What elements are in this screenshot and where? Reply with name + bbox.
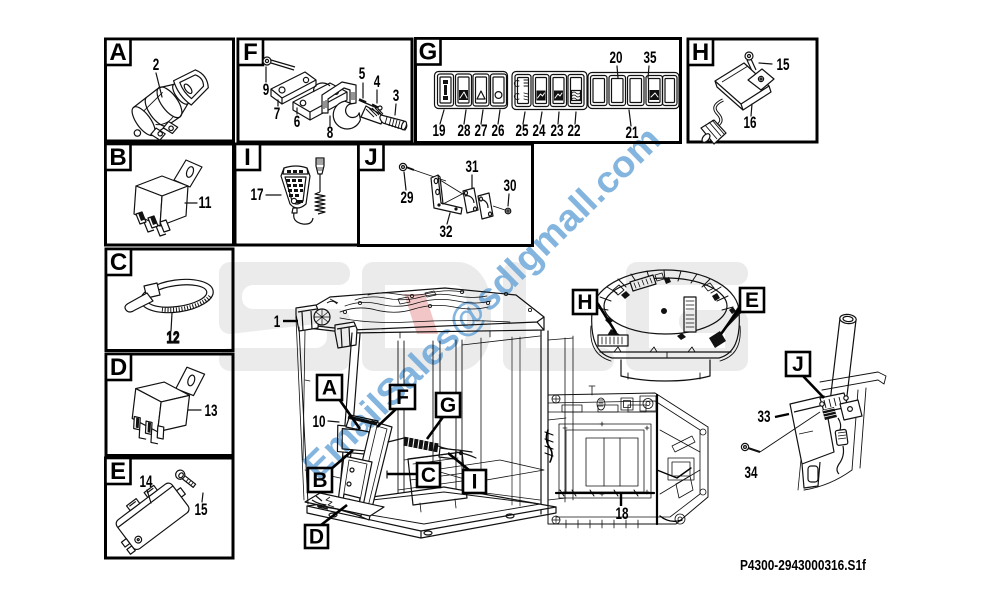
svg-text:P4300-2943000316.S1f: P4300-2943000316.S1f (740, 557, 867, 574)
svg-text:20: 20 (610, 48, 623, 67)
svg-text:11: 11 (199, 193, 212, 212)
svg-text:2: 2 (153, 55, 160, 74)
svg-text:A: A (109, 39, 126, 66)
svg-text:12: 12 (167, 328, 180, 347)
svg-text:29: 29 (401, 188, 414, 207)
svg-text:3: 3 (393, 86, 400, 105)
svg-text:G: G (440, 394, 456, 417)
svg-text:F: F (243, 39, 258, 66)
svg-text:18: 18 (616, 504, 629, 523)
svg-text:14: 14 (140, 472, 153, 491)
svg-text:4: 4 (374, 72, 381, 91)
svg-text:22: 22 (568, 121, 581, 140)
svg-text:16: 16 (744, 113, 757, 132)
svg-text:19: 19 (433, 121, 446, 140)
svg-text:34: 34 (745, 463, 758, 482)
svg-text:I: I (472, 471, 478, 494)
svg-text:15: 15 (195, 500, 208, 519)
svg-text:C: C (110, 249, 127, 276)
svg-text:5: 5 (359, 64, 366, 83)
svg-text:23: 23 (551, 121, 564, 140)
svg-text:32: 32 (440, 222, 453, 241)
svg-text:30: 30 (504, 176, 517, 195)
svg-text:13: 13 (205, 401, 218, 420)
svg-text:D: D (309, 526, 324, 549)
svg-text:B: B (109, 144, 126, 171)
svg-text:31: 31 (466, 157, 479, 176)
svg-text:C: C (421, 464, 436, 487)
svg-text:9: 9 (263, 80, 270, 99)
svg-text:17: 17 (251, 185, 264, 204)
svg-text:J: J (792, 353, 804, 376)
svg-text:24: 24 (533, 121, 546, 140)
svg-text:E: E (110, 458, 126, 485)
svg-text:I: I (244, 144, 251, 171)
svg-text:7: 7 (274, 104, 281, 123)
svg-text:15: 15 (777, 55, 790, 74)
svg-text:E: E (745, 289, 759, 312)
svg-text:6: 6 (294, 112, 301, 131)
svg-text:H: H (577, 291, 592, 314)
svg-text:A: A (322, 377, 337, 400)
svg-text:H: H (692, 39, 709, 66)
svg-text:J: J (364, 144, 377, 171)
svg-text:G: G (419, 39, 438, 66)
svg-text:25: 25 (516, 121, 529, 140)
svg-text:33: 33 (758, 407, 771, 426)
svg-text:D: D (110, 354, 127, 381)
svg-text:35: 35 (644, 48, 657, 67)
